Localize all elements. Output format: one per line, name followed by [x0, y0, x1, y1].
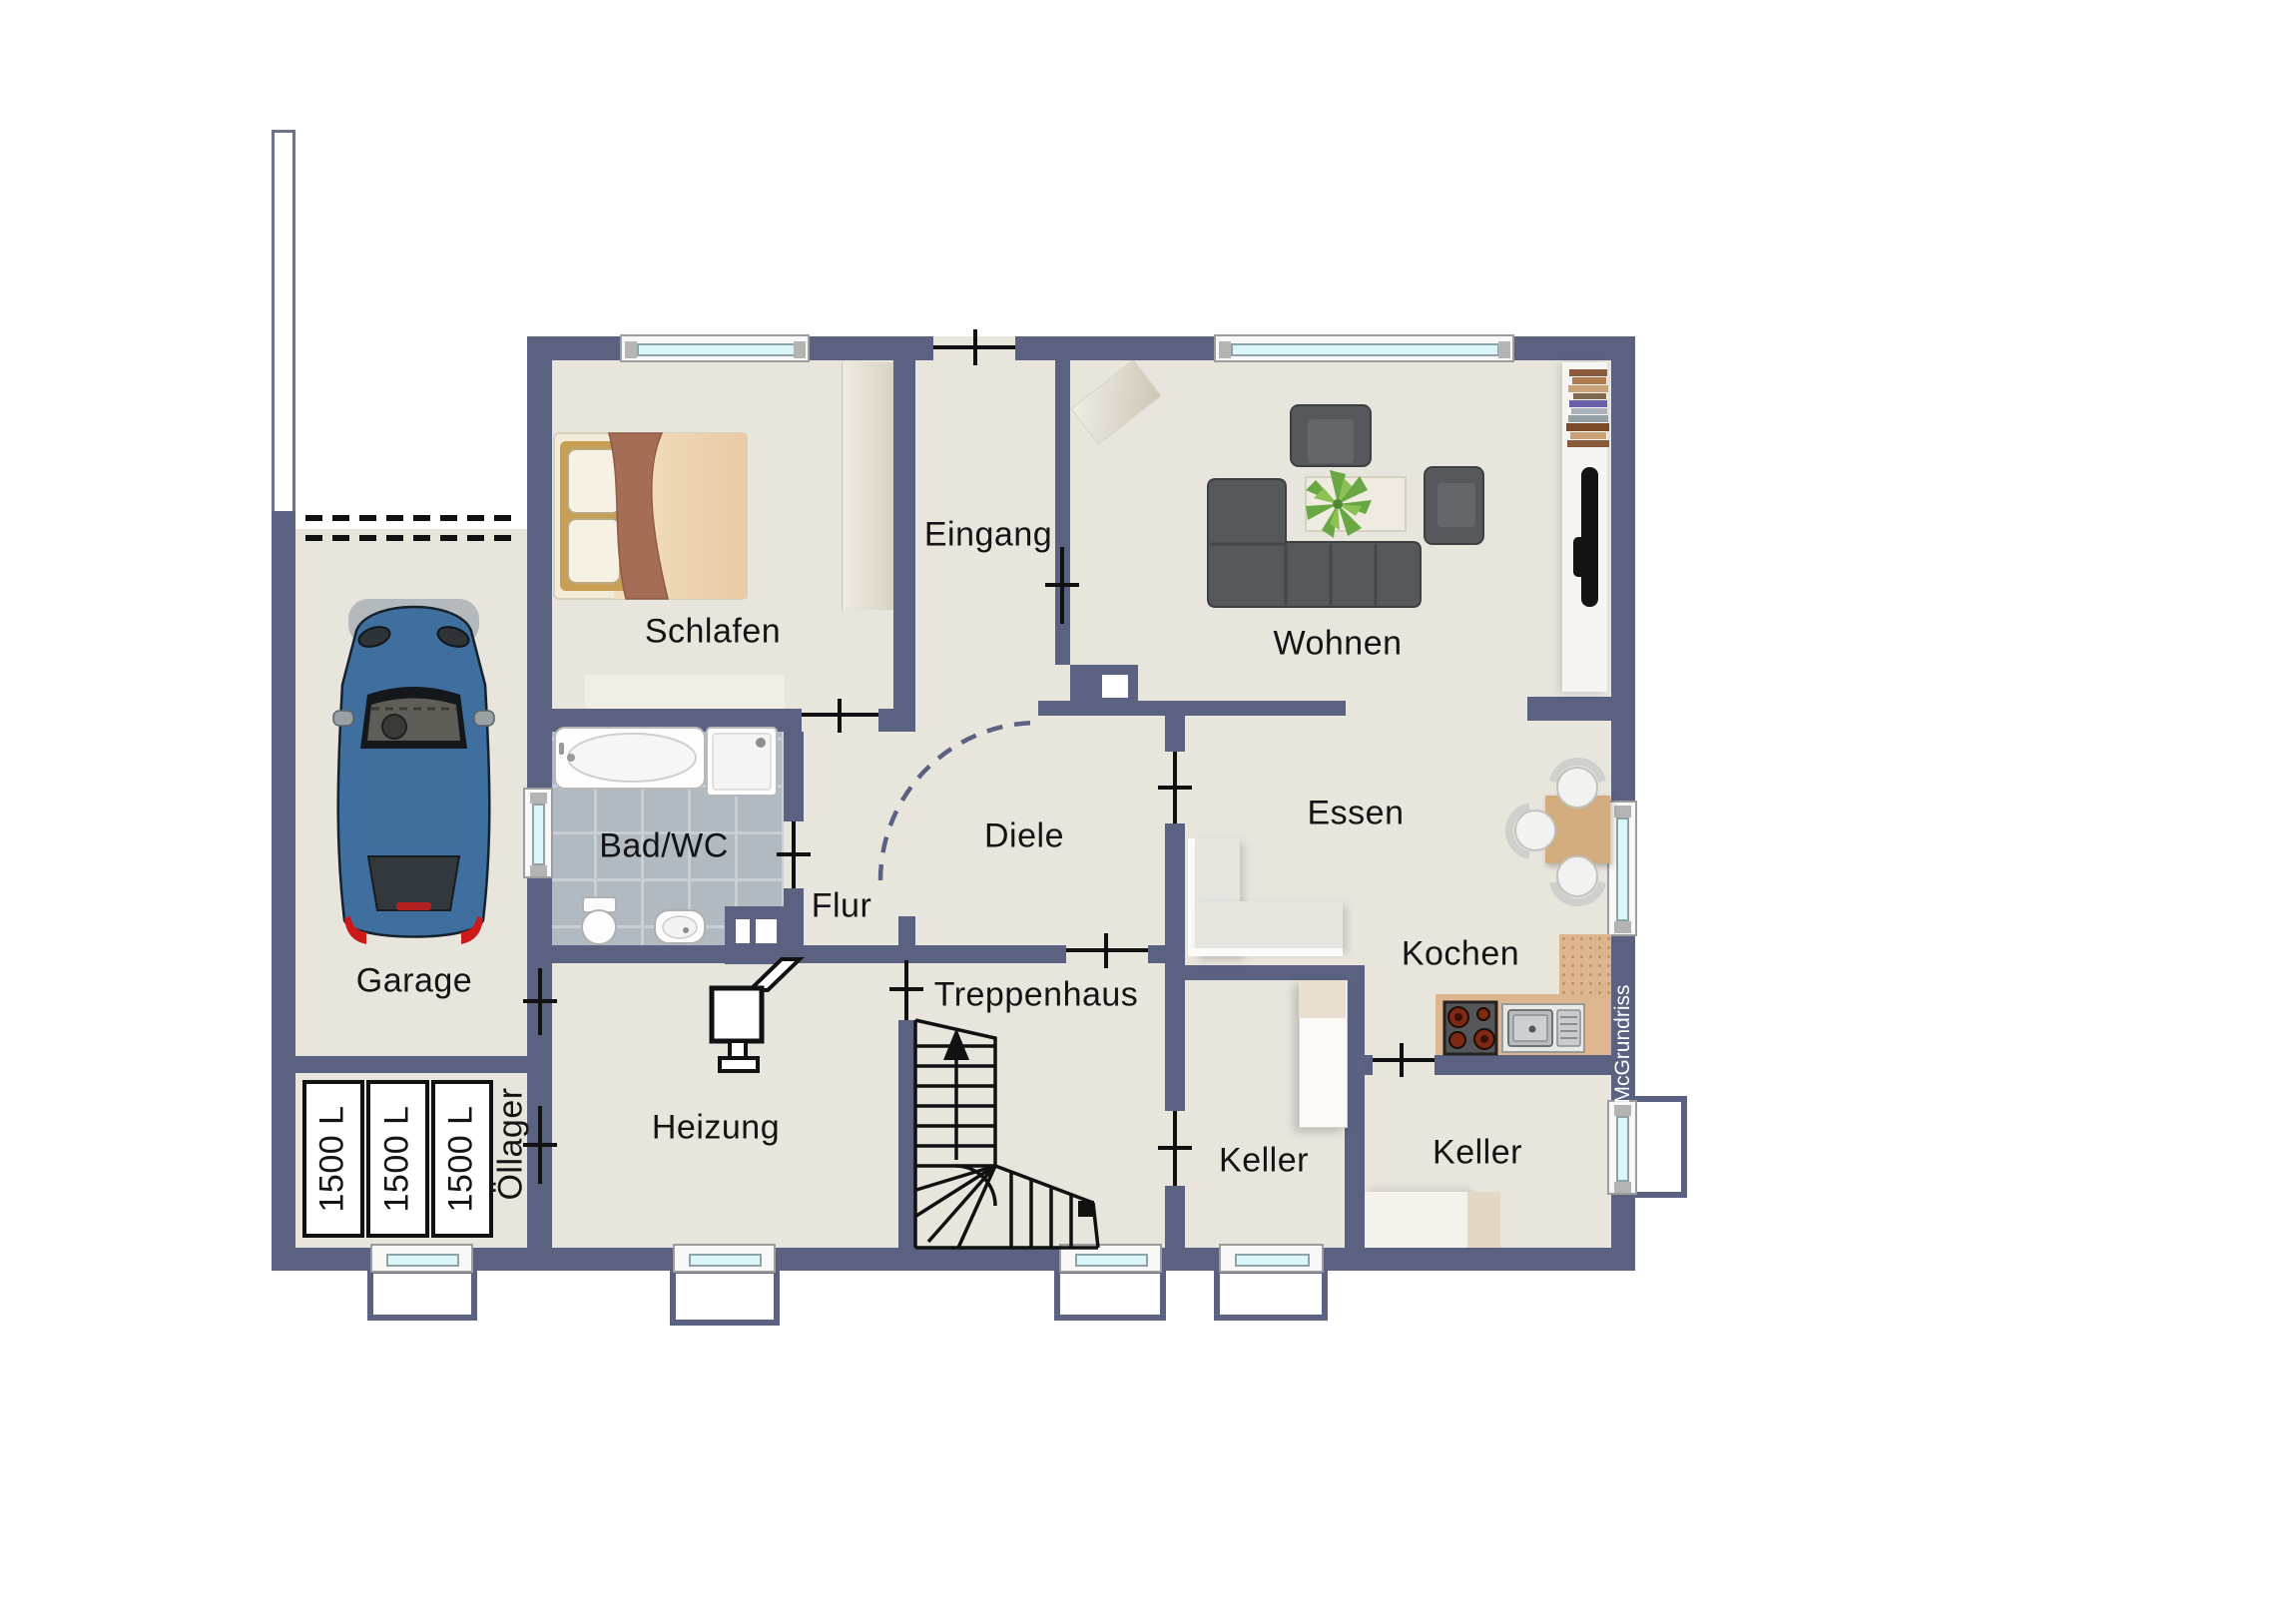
- room-label-treppenhaus: Treppenhaus: [934, 976, 1139, 1015]
- window-keller-bottom: [1219, 1244, 1324, 1273]
- tank-label-2: 1500 L: [378, 1106, 417, 1213]
- room-label-keller-2: Keller: [1433, 1134, 1522, 1173]
- dining-table: [1545, 796, 1610, 863]
- wardrobe: [842, 362, 899, 610]
- window-well-heizung: [670, 1268, 780, 1326]
- wall-trepp-keller-low: [1165, 1186, 1185, 1248]
- room-label-diele: Diele: [984, 817, 1064, 856]
- installation-shaft-2: [756, 919, 777, 943]
- installation-shaft-1: [736, 919, 750, 943]
- wall-badwc-right-a: [784, 732, 804, 821]
- window-badwc: [523, 788, 553, 878]
- wall-diele-essen: [1165, 823, 1185, 1111]
- keller-workbench: [1365, 1192, 1467, 1248]
- window-schlafen: [620, 334, 810, 362]
- room-label-garage: Garage: [356, 962, 472, 1001]
- wall-garage-bottom: [295, 1056, 527, 1073]
- wall-trepp-left: [898, 1020, 915, 1248]
- wall-schlafen-eingang: [893, 360, 915, 732]
- room-label-essen: Essen: [1308, 795, 1405, 833]
- keller-shelf-top: [1299, 980, 1346, 1018]
- entrance-opening: [933, 336, 1015, 360]
- sideboard: [1562, 362, 1607, 692]
- window-wohnen: [1214, 334, 1514, 362]
- room-label-wohnen: Wohnen: [1273, 625, 1402, 664]
- kitchen-counter-tall: [1559, 934, 1611, 996]
- watermark-text: McGrundriss: [1611, 984, 1635, 1103]
- wall-kochen-bottom-b: [1435, 1055, 1611, 1075]
- wall-wohnen-essen-b: [1527, 697, 1611, 721]
- room-label-eingang: Eingang: [924, 516, 1052, 555]
- wall-wohnen-essen-a: [1038, 701, 1346, 716]
- wall-diele-essen-stub: [1165, 716, 1185, 752]
- window-essen: [1607, 801, 1637, 936]
- floor-plan: Garage Schlafen Eingang Wohnen Bad/WC Fl…: [0, 0, 2296, 1623]
- wall-keller-divider: [1345, 978, 1365, 1248]
- wall-garage-left: [272, 511, 295, 1248]
- tank-label-3: 1500 L: [442, 1106, 481, 1213]
- window-treppenhaus: [1059, 1244, 1162, 1273]
- window-heizung: [673, 1244, 776, 1273]
- wall-schlafen-bottom-a: [527, 709, 802, 732]
- corner-bench-horizontal: [1195, 901, 1343, 949]
- schlafen-rug: [585, 675, 785, 709]
- window-well-treppenhaus: [1054, 1268, 1166, 1321]
- wall-flur-bottom: [527, 945, 1066, 963]
- keller-workbench-side: [1467, 1192, 1500, 1248]
- room-label-flur: Flur: [812, 887, 872, 926]
- room-label-kochen: Kochen: [1402, 935, 1519, 974]
- room-label-keller-1: Keller: [1219, 1142, 1309, 1181]
- wall-kochen-bottom-a: [1356, 1055, 1373, 1075]
- room-label-schlafen: Schlafen: [645, 613, 781, 652]
- wall-eingang-wohnen: [1055, 360, 1070, 665]
- tank-label-1: 1500 L: [313, 1106, 352, 1213]
- corner-bench-edge-bottom: [1188, 948, 1343, 956]
- room-label-oellager: Öllager: [492, 1087, 531, 1200]
- room-label-bad-wc: Bad/WC: [599, 827, 729, 866]
- kitchen-counter: [1435, 994, 1611, 1055]
- window-well-keller: [1214, 1268, 1328, 1321]
- window-keller-right: [1607, 1100, 1637, 1195]
- window-well-oellager: [367, 1268, 477, 1321]
- wall-essen-keller-top: [1185, 965, 1365, 980]
- room-label-heizung: Heizung: [652, 1109, 780, 1148]
- wall-exterior-bottom: [272, 1248, 1635, 1271]
- window-well-keller-right: [1631, 1096, 1687, 1198]
- wall-junction-stub: [898, 916, 915, 960]
- boundary-fence: [272, 130, 295, 515]
- chimney-eingang-flue: [1102, 675, 1128, 698]
- window-oellager: [370, 1244, 473, 1273]
